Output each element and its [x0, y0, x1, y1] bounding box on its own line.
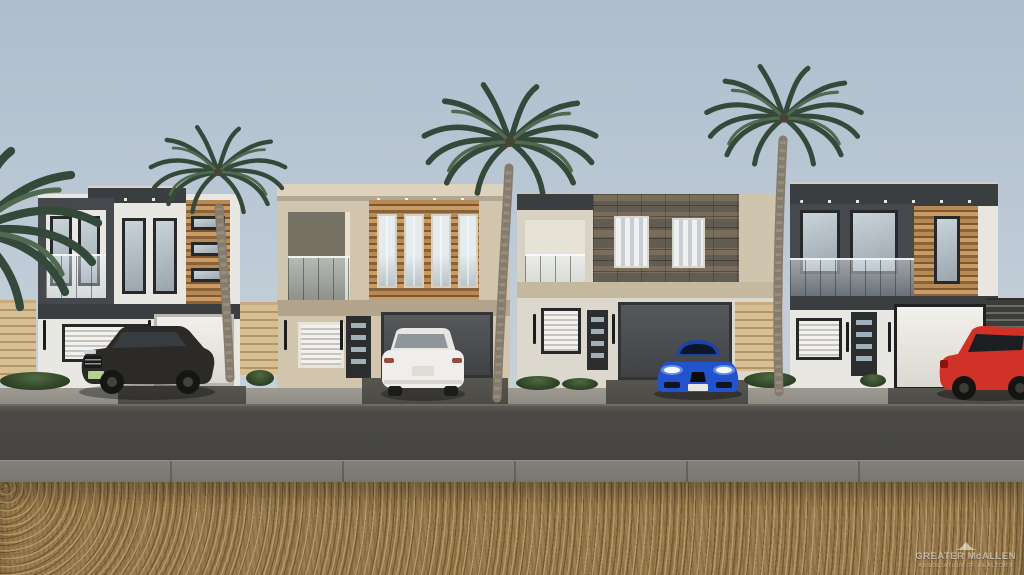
house-3-sconce-2	[612, 314, 615, 344]
house-4-door-glass	[856, 320, 872, 365]
shrub-row-2	[246, 370, 274, 386]
house-3-front-door	[587, 310, 608, 370]
house-3-upper-window-2	[672, 218, 705, 268]
house-3-floor-band	[517, 282, 783, 298]
shrub-row-6	[860, 374, 886, 387]
fence-between-1-2	[240, 302, 278, 375]
house-4-sconce-2	[888, 322, 891, 352]
house-1-strip-window-1	[191, 216, 225, 230]
asphalt-street	[0, 404, 1024, 464]
shrub-row-1	[0, 372, 70, 390]
shrub-row-3	[516, 376, 560, 390]
house-4-wood-accent	[914, 206, 978, 296]
house-3-right-wall	[739, 194, 783, 294]
house-1-wood-accent	[186, 200, 230, 304]
house-2-upper-window-4	[458, 214, 478, 288]
house-2-sconce-1	[284, 320, 287, 350]
car-red-suv	[934, 318, 1024, 404]
house-2-upper-window-2	[404, 214, 424, 288]
watermark-line1: GREATER McALLEN	[915, 551, 1016, 563]
house-2-upper-window-3	[431, 214, 451, 288]
house-1-upper-window-2	[153, 218, 177, 294]
car-white-suv	[376, 324, 470, 402]
house-4-right-wall	[978, 206, 998, 296]
house-2-balcony-recess	[288, 212, 350, 304]
house-2-balcony-railing	[288, 256, 350, 304]
rendering-scene: GREATER McALLEN ASSOCIATION OF REALTORS	[0, 0, 1024, 575]
house-3-sconce-1	[533, 314, 536, 344]
car-dark-suv	[72, 314, 222, 402]
house-3-upper-window-1	[614, 216, 649, 268]
fence-left	[0, 300, 36, 381]
car-blue-coupe	[650, 334, 746, 400]
house-1-frame-box	[38, 198, 114, 304]
house-2-wood-accent	[369, 200, 479, 304]
house-4-balcony-railing	[790, 258, 914, 296]
gravel-lot	[0, 482, 1024, 575]
house-3-door-glass	[591, 317, 604, 359]
house-4-sconce-1	[846, 322, 849, 352]
house-2-sconce-2	[340, 320, 343, 350]
house-2-front-door	[346, 316, 371, 378]
house-1-balcony-railing	[46, 254, 106, 298]
house-4-front-door	[851, 312, 877, 376]
house-1-sconce-left	[43, 320, 46, 350]
house-3-canopy	[517, 192, 593, 210]
house-1-strip-window-3	[191, 268, 225, 282]
house-1-strip-window-2	[191, 242, 225, 256]
watermark: GREATER McALLEN ASSOCIATION OF REALTORS	[915, 542, 1016, 570]
shrub-row-4	[562, 378, 598, 390]
house-2-upper-window-1	[377, 214, 397, 288]
house-2-door-glass	[351, 323, 366, 366]
watermark-logo-palm-emblem	[955, 542, 977, 551]
house-2-sconce-3	[498, 320, 501, 350]
house-2-parapet	[277, 184, 510, 196]
house-1-upper-window-1	[122, 218, 146, 294]
house-4-lower-window	[796, 318, 842, 360]
house-4-wood-window	[934, 216, 960, 284]
house-4-downlights	[800, 200, 980, 203]
house-2-lower-window	[298, 322, 344, 368]
shrub-row-5	[744, 372, 796, 388]
watermark-line2: ASSOCIATION OF REALTORS	[915, 563, 1016, 570]
house-3-lower-window	[541, 308, 581, 354]
